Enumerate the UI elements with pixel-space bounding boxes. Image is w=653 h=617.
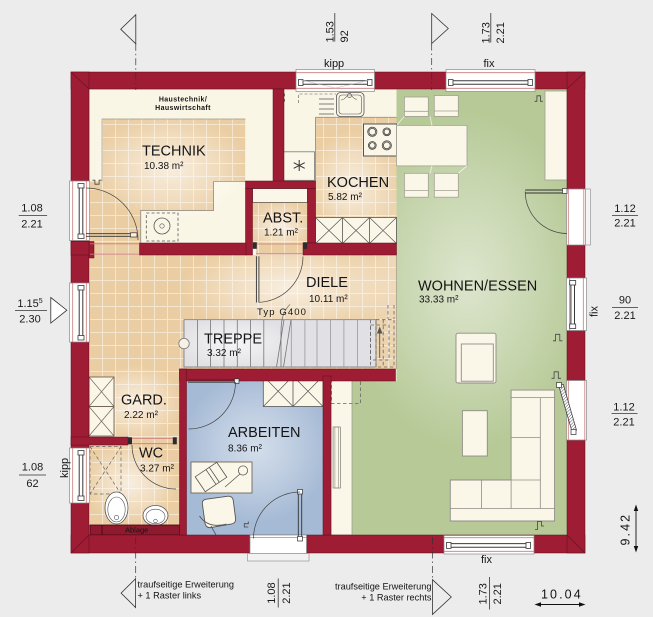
svg-text:TREPPE: TREPPE <box>204 332 262 348</box>
svg-text:TECHNIK: TECHNIK <box>142 144 206 160</box>
svg-text:5.82 m²: 5.82 m² <box>328 192 363 203</box>
svg-text:+ 1 Raster rechts: + 1 Raster rechts <box>361 593 432 603</box>
svg-text:GARD.: GARD. <box>121 393 167 409</box>
svg-text:3.27 m²: 3.27 m² <box>140 464 175 475</box>
svg-text:DIELE: DIELE <box>306 275 348 291</box>
svg-text:2.21: 2.21 <box>281 582 293 603</box>
svg-text:1.73: 1.73 <box>477 583 489 604</box>
svg-text:1.12: 1.12 <box>613 402 634 414</box>
svg-text:10.04: 10.04 <box>541 588 583 602</box>
svg-text:traufseitige Erweiterung: traufseitige Erweiterung <box>335 582 432 592</box>
svg-text:1.08: 1.08 <box>22 462 43 474</box>
svg-text:90: 90 <box>619 295 631 307</box>
svg-text:traufseitige Erweiterung: traufseitige Erweiterung <box>138 580 235 590</box>
svg-text:2.21: 2.21 <box>614 310 635 322</box>
svg-text:2.21: 2.21 <box>492 583 504 604</box>
svg-text:2.21: 2.21 <box>613 417 634 429</box>
svg-text:2.21: 2.21 <box>21 219 42 231</box>
svg-text:2.30: 2.30 <box>19 314 40 326</box>
svg-text:Ablage: Ablage <box>125 526 148 535</box>
svg-text:2.21: 2.21 <box>614 218 635 230</box>
svg-text:10.38 m²: 10.38 m² <box>144 161 184 172</box>
svg-text:kipp: kipp <box>59 458 71 478</box>
svg-text:Haustechnik/: Haustechnik/ <box>159 97 207 104</box>
svg-text:1.21 m²: 1.21 m² <box>264 228 299 239</box>
svg-text:33.33 m²: 33.33 m² <box>419 295 459 306</box>
svg-text:2.21: 2.21 <box>495 22 507 43</box>
svg-text:2.22 m²: 2.22 m² <box>124 410 159 421</box>
svg-text:WC: WC <box>139 446 163 462</box>
svg-text:3.32 m²: 3.32 m² <box>207 348 242 359</box>
svg-text:WOHNEN/ESSEN: WOHNEN/ESSEN <box>418 279 537 295</box>
svg-text:8.36 m²: 8.36 m² <box>228 444 263 455</box>
svg-text:Hauswirtschaft: Hauswirtschaft <box>155 105 211 112</box>
svg-text:9.42: 9.42 <box>619 513 633 546</box>
svg-text:fix: fix <box>484 58 496 70</box>
svg-text:KOCHEN: KOCHEN <box>327 175 389 191</box>
svg-text:fix: fix <box>481 554 493 566</box>
svg-text:ABST.: ABST. <box>263 211 303 227</box>
svg-text:+ 1 Raster links: + 1 Raster links <box>138 591 202 601</box>
svg-text:Typ G400: Typ G400 <box>257 307 307 318</box>
svg-text:62: 62 <box>26 478 38 490</box>
svg-text:1.12: 1.12 <box>614 203 635 215</box>
svg-text:kipp: kipp <box>324 58 344 70</box>
svg-text:92: 92 <box>339 30 351 42</box>
svg-text:ARBEITEN: ARBEITEN <box>228 425 301 441</box>
svg-text:1.08: 1.08 <box>21 203 42 215</box>
svg-text:1.08: 1.08 <box>266 582 278 603</box>
svg-text:10.11 m²: 10.11 m² <box>309 294 348 305</box>
svg-text:fix: fix <box>589 306 601 318</box>
